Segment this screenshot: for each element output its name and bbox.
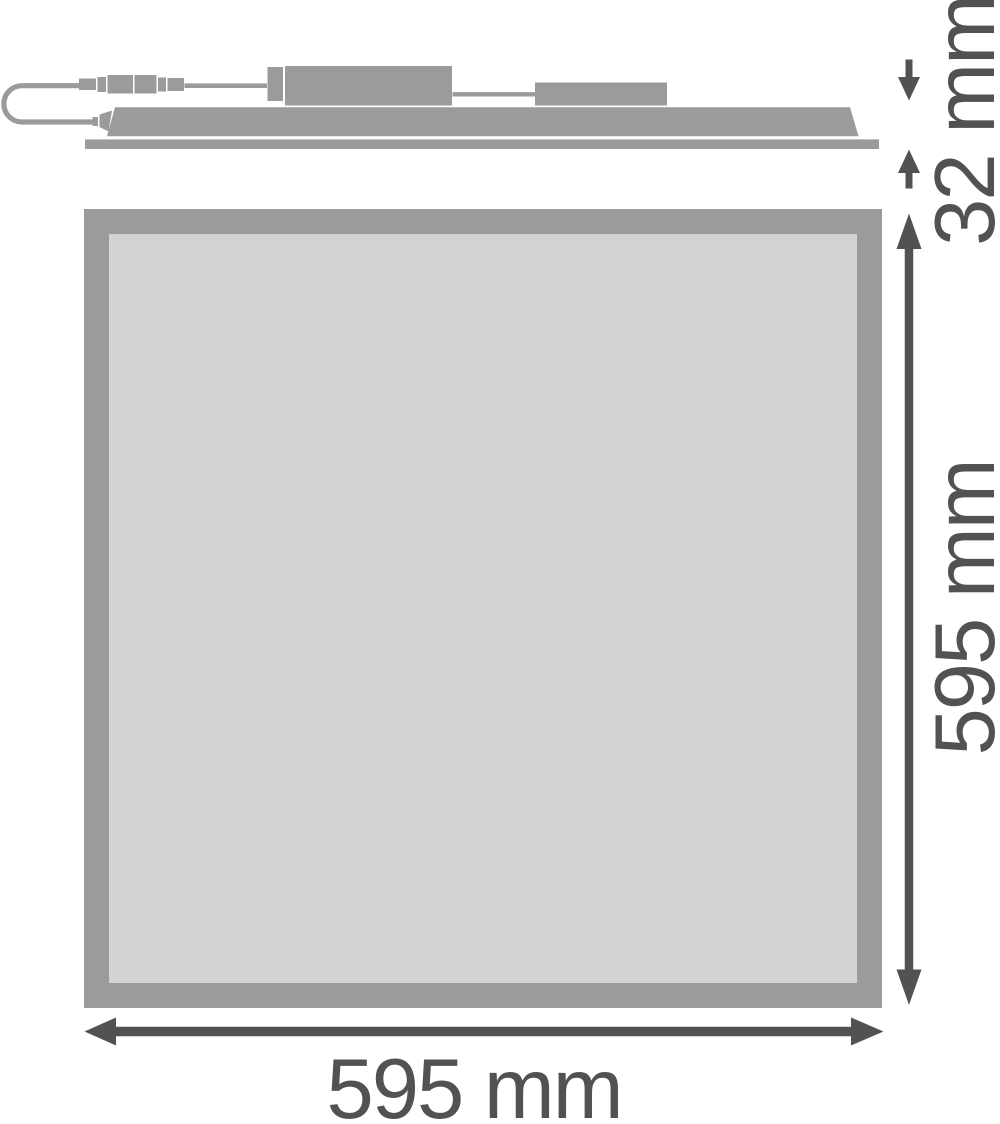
panel-width-label: 595 mm — [326, 1042, 621, 1124]
profile-height-label: 32 mm — [918, 0, 1000, 246]
driver-box — [268, 66, 453, 106]
cable-loop — [4, 86, 93, 122]
arrow-down-icon — [898, 77, 920, 101]
panel-flange-profile — [85, 139, 879, 149]
driver-end-cap — [268, 67, 284, 101]
side-profile-view — [4, 66, 879, 149]
drawing-canvas: 32 mm 595 mm 595 mm — [0, 0, 1000, 1124]
arrow-up-icon — [898, 150, 920, 174]
panel-diffuser — [109, 234, 857, 983]
connector-segment — [108, 75, 134, 94]
arrow-left-icon — [85, 1018, 117, 1046]
arrow-down-icon — [897, 970, 922, 1006]
arrow-right-icon — [851, 1018, 884, 1046]
dimension-drawing: 32 mm 595 mm 595 mm — [0, 0, 1000, 1124]
connector-segment — [135, 75, 157, 94]
connector-segment — [98, 77, 107, 92]
connector-segment — [79, 79, 96, 91]
connector-segment — [168, 78, 185, 91]
cable-connector — [79, 75, 184, 94]
connector-segment — [158, 78, 166, 92]
panel-edge-plug — [93, 111, 113, 132]
plug-segment — [93, 117, 99, 126]
dimension-panel-height: 595 mm — [897, 214, 1000, 1006]
dimension-panel-width: 595 mm — [85, 1018, 884, 1124]
panel-body-profile — [107, 107, 859, 136]
front-view — [84, 209, 882, 1008]
driver-body — [285, 66, 452, 106]
panel-height-label: 595 mm — [918, 460, 1000, 755]
junction-box — [535, 83, 667, 106]
dimension-profile-height: 32 mm — [898, 0, 1000, 246]
